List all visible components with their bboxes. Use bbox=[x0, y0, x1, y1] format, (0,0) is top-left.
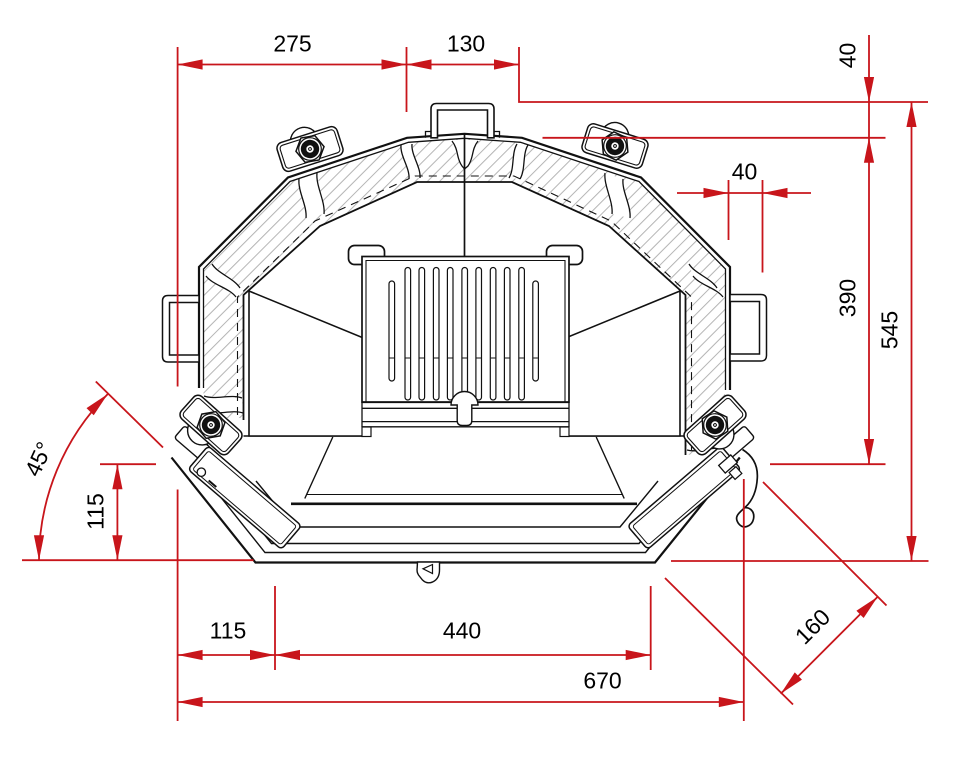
svg-text:40: 40 bbox=[732, 159, 758, 185]
svg-text:115: 115 bbox=[210, 618, 247, 644]
svg-text:670: 670 bbox=[583, 668, 621, 694]
svg-text:275: 275 bbox=[273, 31, 311, 57]
svg-text:545: 545 bbox=[877, 311, 903, 349]
svg-text:390: 390 bbox=[835, 279, 861, 317]
svg-text:115: 115 bbox=[83, 493, 109, 530]
svg-text:40: 40 bbox=[835, 43, 861, 69]
svg-text:440: 440 bbox=[443, 618, 481, 644]
svg-text:130: 130 bbox=[447, 31, 485, 57]
